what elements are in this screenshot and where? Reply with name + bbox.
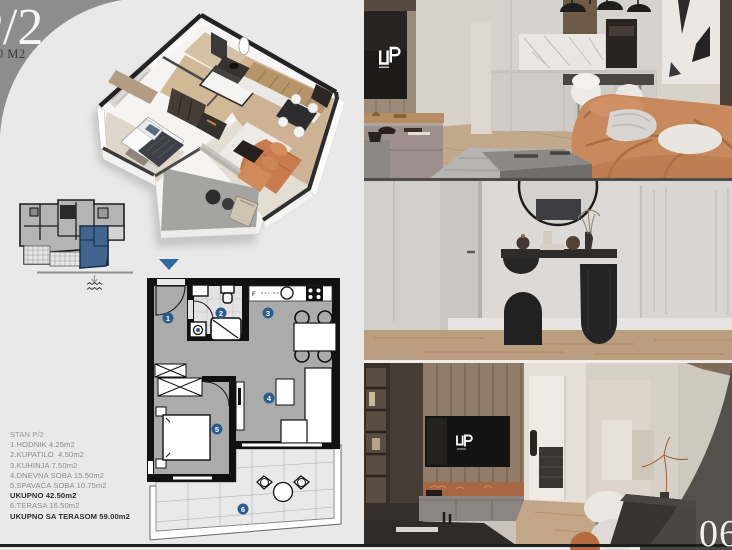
svg-text:6: 6 bbox=[241, 505, 245, 514]
svg-text:5: 5 bbox=[215, 425, 219, 434]
svg-text:F: F bbox=[252, 292, 256, 298]
svg-text:2: 2 bbox=[219, 309, 223, 318]
svg-text:1: 1 bbox=[166, 314, 170, 323]
svg-text:3: 3 bbox=[266, 309, 270, 318]
